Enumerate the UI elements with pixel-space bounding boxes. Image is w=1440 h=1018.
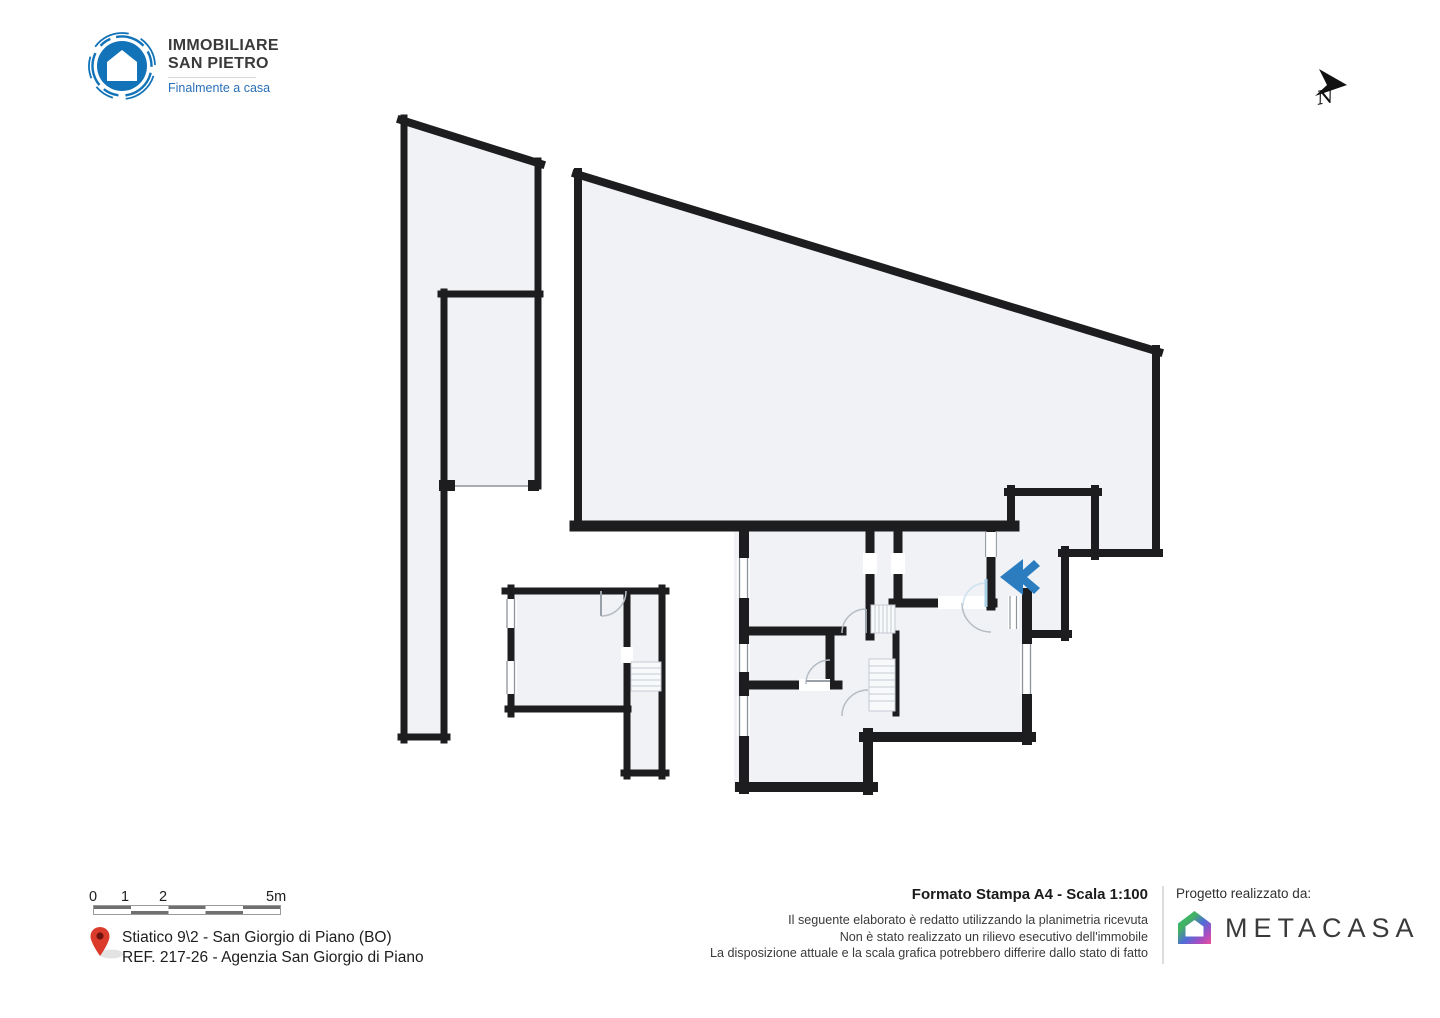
property-address: Stiatico 9\2 - San Giorgio di Piano (BO)… [122, 928, 424, 967]
credits-label: Progetto realizzato da: [1176, 886, 1311, 901]
scale-label-2: 2 [159, 889, 167, 905]
disclaimer-line2: Non è stato realizzato un rilievo esecut… [588, 929, 1148, 946]
disclaimer-line1: Il seguente elaborato è redatto utilizza… [588, 912, 1148, 929]
print-info: Formato Stampa A4 - Scala 1:100 Il segue… [588, 886, 1148, 962]
floor-plan: N [0, 0, 1440, 1018]
scale-label-0: 0 [89, 889, 97, 905]
metacasa-logo: METACASA [1176, 908, 1420, 948]
north-arrow-icon: N [1314, 69, 1347, 110]
scale-bar-top-row [94, 906, 280, 909]
address-line2: REF. 217-26 - Agenzia San Giorgio di Pia… [122, 948, 424, 968]
footer-divider [1162, 886, 1164, 964]
print-format-title: Formato Stampa A4 - Scala 1:100 [588, 886, 1148, 903]
metacasa-name: METACASA [1225, 913, 1420, 944]
disclaimer-line3: La disposizione attuale e la scala grafi… [588, 945, 1148, 962]
annex-stairs [631, 662, 661, 691]
address-line1: Stiatico 9\2 - San Giorgio di Piano (BO) [122, 928, 424, 948]
scale-label-5m: 5m [266, 889, 286, 905]
scale-bar-bottom-row [94, 911, 280, 914]
scale-bar [93, 905, 281, 915]
metacasa-icon [1176, 908, 1213, 948]
scale-label-1: 1 [121, 889, 129, 905]
